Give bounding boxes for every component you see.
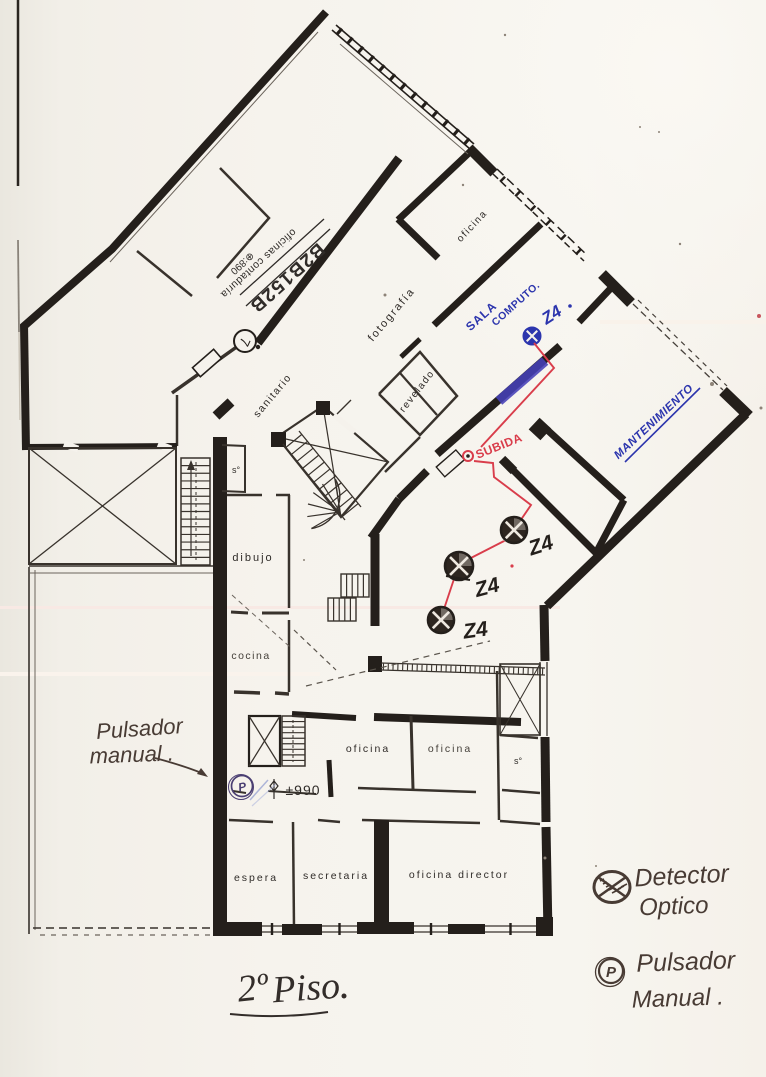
svg-text:Z4: Z4 (461, 617, 490, 643)
svg-text:s°: s° (232, 465, 241, 475)
svg-text:Manual .: Manual . (631, 983, 724, 1013)
svg-text:2º: 2º (235, 965, 271, 1010)
svg-text:Detector: Detector (634, 859, 731, 892)
svg-text:Piso: Piso (270, 965, 341, 1012)
svg-text:P: P (606, 964, 617, 981)
svg-text:oficina: oficina (346, 743, 390, 755)
svg-text:manual .: manual . (89, 741, 174, 769)
svg-text:secretaria: secretaria (303, 870, 369, 882)
svg-text:dibujo: dibujo (232, 552, 273, 564)
svg-text:cocina: cocina (231, 650, 270, 662)
svg-text:Optico: Optico (639, 892, 709, 921)
svg-text:oficina: oficina (428, 743, 472, 755)
svg-text:espera: espera (234, 872, 278, 884)
svg-text:Pulsador: Pulsador (636, 946, 737, 977)
svg-text:oficina director: oficina director (409, 869, 509, 881)
svg-text:±990: ±990 (285, 782, 320, 798)
svg-text:s°: s° (514, 756, 523, 766)
